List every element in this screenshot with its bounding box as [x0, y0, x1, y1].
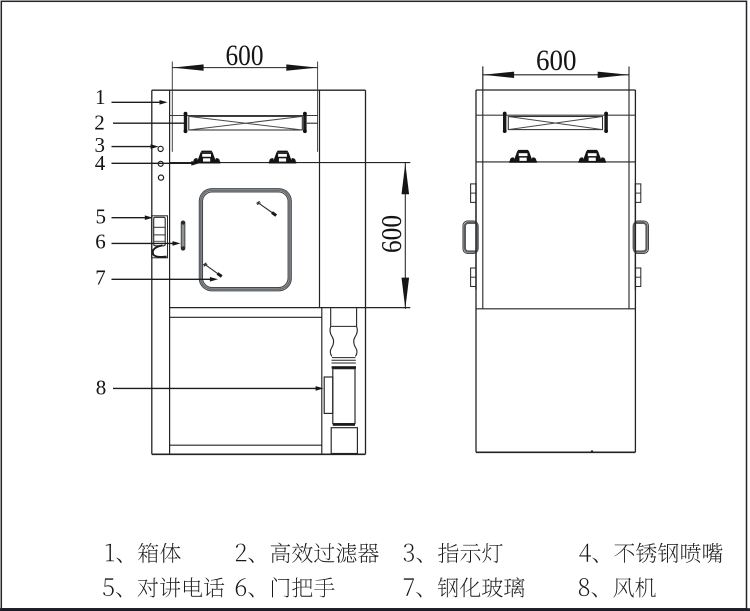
- svg-text:600: 600: [377, 215, 408, 253]
- svg-text:8: 8: [96, 375, 107, 399]
- svg-text:2: 2: [94, 110, 105, 134]
- svg-text:5: 5: [96, 204, 107, 228]
- svg-text:600: 600: [536, 45, 577, 77]
- svg-text:6: 6: [95, 229, 106, 253]
- svg-text:600: 600: [226, 40, 264, 72]
- svg-text:1: 1: [95, 85, 106, 109]
- svg-text:7: 7: [95, 265, 106, 289]
- svg-text:4: 4: [95, 151, 106, 175]
